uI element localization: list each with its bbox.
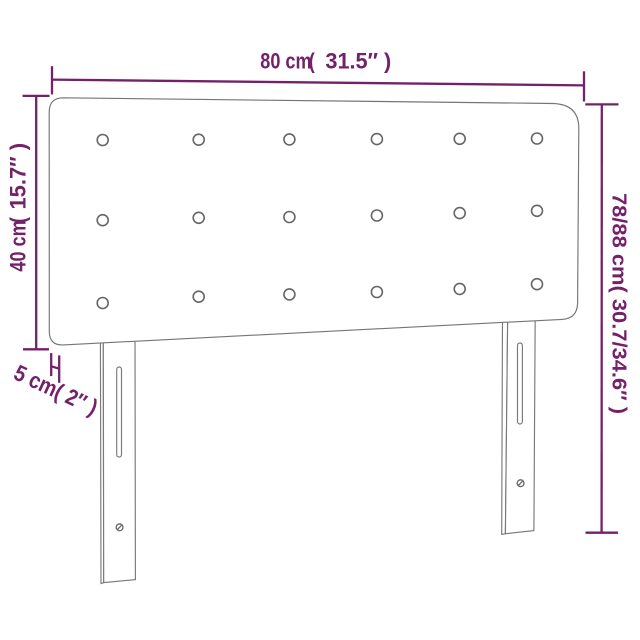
svg-text:80 cm(: 80 cm( <box>260 49 315 74</box>
svg-text:40 cm(: 40 cm( <box>5 217 30 272</box>
svg-text:31.5″ ): 31.5″ ) <box>325 48 391 74</box>
svg-text:15.7″ ): 15.7″ ) <box>5 143 30 210</box>
svg-text:5 cm( 2″ ): 5 cm( 2″ ) <box>10 361 101 421</box>
svg-text:78/88 cm( 30.7/34.6″ ): 78/88 cm( 30.7/34.6″ ) <box>608 193 630 414</box>
